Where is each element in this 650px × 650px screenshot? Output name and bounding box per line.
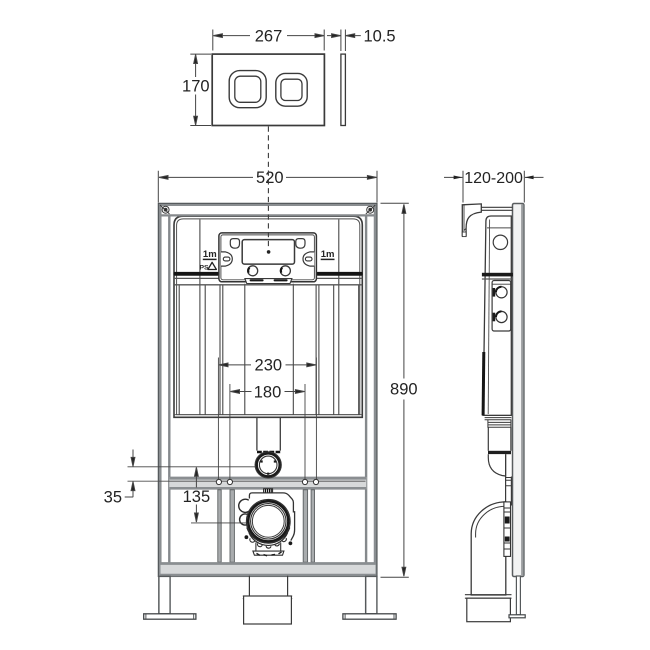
svg-text:230: 230 bbox=[255, 357, 283, 375]
svg-text:267: 267 bbox=[255, 28, 283, 46]
svg-text:1m: 1m bbox=[321, 249, 335, 260]
svg-text:10.5: 10.5 bbox=[364, 28, 396, 46]
svg-text:1m: 1m bbox=[203, 249, 217, 260]
svg-text:180: 180 bbox=[254, 383, 282, 401]
svg-text:35: 35 bbox=[104, 488, 122, 506]
svg-text:170: 170 bbox=[182, 77, 210, 95]
svg-text:520: 520 bbox=[256, 169, 284, 187]
svg-text:PS: PS bbox=[200, 265, 210, 272]
svg-text:890: 890 bbox=[390, 381, 418, 399]
svg-text:135: 135 bbox=[183, 488, 211, 506]
svg-text:120-200: 120-200 bbox=[464, 170, 523, 187]
